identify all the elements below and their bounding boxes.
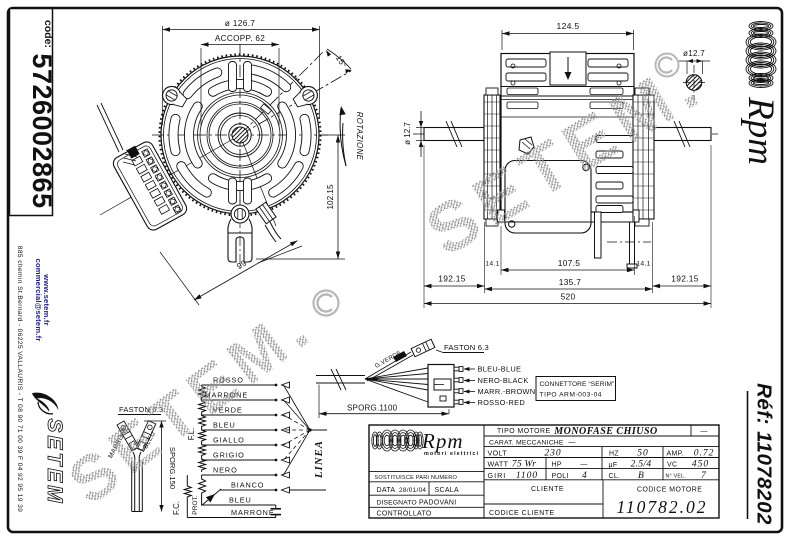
svg-text:MONOFASE CHIUSO: MONOFASE CHIUSO bbox=[553, 426, 658, 437]
svg-text:GIRI: GIRI bbox=[488, 471, 507, 480]
svg-text:PROT.: PROT. bbox=[192, 495, 199, 515]
svg-text:HP: HP bbox=[552, 461, 562, 468]
svg-text:PADOVANI: PADOVANI bbox=[419, 500, 457, 507]
svg-text:28/01/04: 28/01/04 bbox=[399, 487, 426, 494]
svg-text:CODICE MOTORE: CODICE MOTORE bbox=[637, 487, 702, 494]
svg-text:—: — bbox=[700, 429, 707, 436]
svg-text:135.7: 135.7 bbox=[559, 277, 582, 287]
svg-text:DATA: DATA bbox=[377, 487, 396, 494]
svg-text:DISEGNATO: DISEGNATO bbox=[377, 500, 417, 507]
svg-text:POLI: POLI bbox=[552, 473, 569, 480]
svg-text:2.5/4: 2.5/4 bbox=[631, 460, 652, 470]
svg-text:Rpm: Rpm bbox=[740, 96, 781, 165]
svg-text:ROTAZIONE: ROTAZIONE bbox=[355, 112, 364, 161]
svg-text:commercial@setem.fr: commercial@setem.fr bbox=[34, 259, 43, 342]
svg-text:FASTON 6.3: FASTON 6.3 bbox=[444, 343, 489, 352]
svg-text:MARRONE: MARRONE bbox=[231, 508, 275, 517]
svg-text:N° VEL.: N° VEL. bbox=[666, 473, 687, 479]
svg-text:WATT: WATT bbox=[488, 459, 509, 468]
svg-text:CLIENTE: CLIENTE bbox=[531, 486, 564, 493]
svg-text:50: 50 bbox=[637, 449, 649, 459]
svg-text:HZ: HZ bbox=[609, 450, 619, 457]
svg-text:4: 4 bbox=[582, 471, 587, 481]
svg-text:—: — bbox=[568, 440, 575, 447]
svg-text:VOLT: VOLT bbox=[488, 448, 508, 457]
svg-text:520: 520 bbox=[561, 292, 576, 302]
svg-text:F.C.: F.C. bbox=[172, 501, 181, 515]
svg-text:ROSSO-RED: ROSSO-RED bbox=[478, 398, 525, 407]
svg-text:SOSTITUISCE PARI NUMERO: SOSTITUISCE PARI NUMERO bbox=[375, 475, 458, 481]
svg-text:885 chemin St.Bernard - 0622: 885 chemin St.Bernard - 06225 VALLAURIS … bbox=[16, 246, 23, 512]
svg-text:ACCOPP. 62: ACCOPP. 62 bbox=[215, 34, 265, 43]
svg-text:450: 450 bbox=[692, 460, 709, 470]
svg-text:code:: code: bbox=[42, 20, 54, 48]
svg-text:Rpm: Rpm bbox=[421, 429, 464, 453]
svg-text:ø12.7: ø12.7 bbox=[683, 49, 705, 58]
svg-text:110782.02: 110782.02 bbox=[616, 497, 707, 517]
svg-text:CODICE CLIENTE: CODICE CLIENTE bbox=[489, 510, 555, 517]
svg-text:CARAT. MECCANICHE: CARAT. MECCANICHE bbox=[489, 440, 564, 447]
svg-text:ø 12.7: ø 12.7 bbox=[403, 122, 412, 145]
svg-text:TIPO MOTORE: TIPO MOTORE bbox=[497, 428, 551, 435]
svg-text:BLEU: BLEU bbox=[229, 496, 252, 505]
svg-text:102.15: 102.15 bbox=[326, 184, 335, 209]
svg-text:μF: μF bbox=[609, 462, 618, 469]
svg-text:AMP.: AMP. bbox=[667, 450, 684, 457]
svg-text:75 Wr: 75 Wr bbox=[512, 460, 536, 470]
svg-text:CONTROLLATO: CONTROLLATO bbox=[377, 511, 432, 518]
svg-text:14.1: 14.1 bbox=[636, 261, 650, 268]
svg-text:—: — bbox=[580, 461, 587, 468]
svg-text:14.1: 14.1 bbox=[485, 261, 499, 268]
svg-text:ø 126.7: ø 126.7 bbox=[225, 18, 256, 28]
svg-text:192.15: 192.15 bbox=[671, 274, 698, 284]
svg-text:TIPO ARM-003-04: TIPO ARM-003-04 bbox=[540, 392, 603, 399]
svg-text:5726002865: 5726002865 bbox=[27, 53, 57, 208]
svg-text:BLEU-BLUE: BLEU-BLUE bbox=[478, 365, 522, 374]
svg-text:107.5: 107.5 bbox=[558, 258, 581, 268]
svg-text:BIANCO: BIANCO bbox=[231, 481, 264, 490]
svg-text:192.15: 192.15 bbox=[438, 274, 465, 284]
svg-text:MARR.-BROWN: MARR.-BROWN bbox=[478, 387, 536, 396]
svg-text:SPORG.1100: SPORG.1100 bbox=[347, 404, 398, 413]
svg-text:CL.: CL. bbox=[609, 473, 621, 480]
svg-text:LINEA: LINEA bbox=[314, 440, 325, 479]
svg-text:124.5: 124.5 bbox=[556, 21, 579, 31]
svg-text:motori elettrici: motori elettrici bbox=[424, 451, 479, 457]
svg-text:1100: 1100 bbox=[516, 471, 538, 481]
svg-text:GRIGIO: GRIGIO bbox=[213, 451, 245, 460]
svg-text:NERO: NERO bbox=[213, 466, 238, 475]
svg-text:CONNETTORE “SERIM”: CONNETTORE “SERIM” bbox=[540, 381, 615, 388]
svg-text:GIALLO: GIALLO bbox=[213, 436, 245, 445]
svg-text:B: B bbox=[638, 471, 644, 481]
svg-text:0.72: 0.72 bbox=[694, 449, 715, 459]
svg-text:VC: VC bbox=[667, 461, 677, 468]
svg-text:NERO-BLACK: NERO-BLACK bbox=[478, 376, 529, 385]
svg-text:230: 230 bbox=[544, 449, 561, 459]
svg-text:Réf: 11078202: Réf: 11078202 bbox=[753, 383, 776, 525]
svg-text:SCALA: SCALA bbox=[435, 487, 459, 494]
